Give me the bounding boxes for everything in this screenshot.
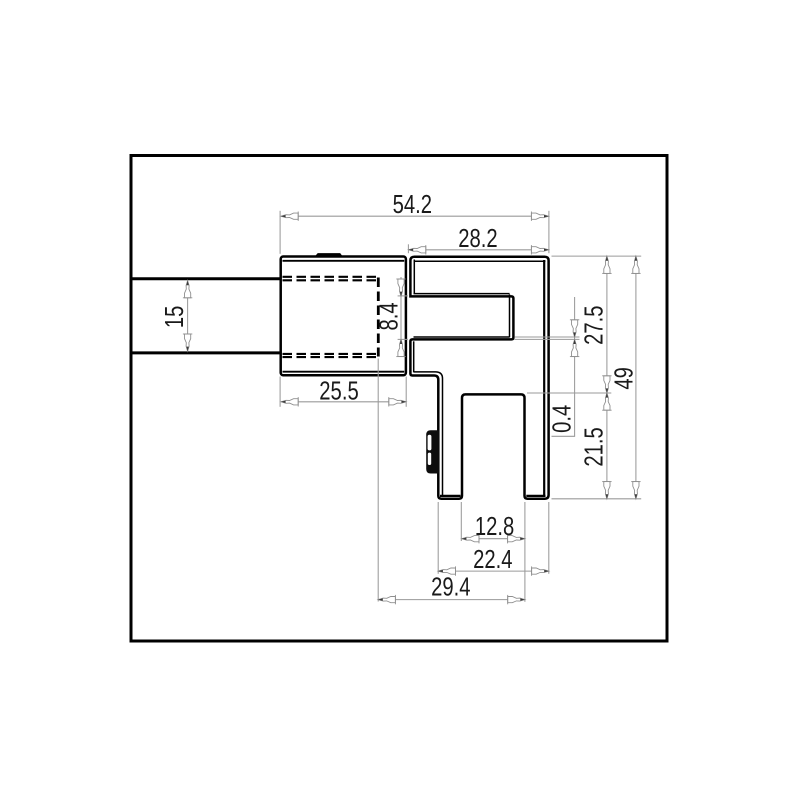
- svg-text:49: 49: [609, 367, 638, 390]
- svg-text:15: 15: [160, 306, 189, 329]
- svg-text:29.4: 29.4: [431, 572, 470, 601]
- svg-text:22.4: 22.4: [473, 545, 512, 574]
- svg-text:25.5: 25.5: [319, 376, 358, 405]
- svg-text:28.2: 28.2: [458, 224, 497, 253]
- svg-text:21.5: 21.5: [579, 427, 608, 466]
- svg-text:54.2: 54.2: [393, 190, 432, 219]
- svg-text:12.8: 12.8: [475, 512, 514, 541]
- svg-text:0.4: 0.4: [547, 405, 576, 433]
- svg-text:27.5: 27.5: [579, 305, 608, 344]
- svg-text:8.4: 8.4: [374, 302, 403, 330]
